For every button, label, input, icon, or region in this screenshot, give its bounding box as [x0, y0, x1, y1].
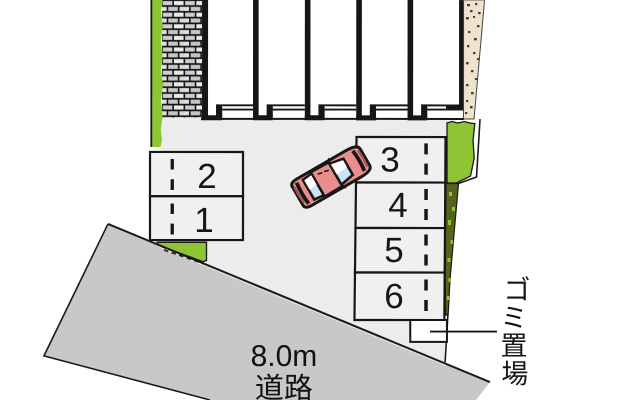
svg-text:3: 3	[380, 141, 399, 180]
svg-text:道路: 道路	[255, 372, 313, 400]
svg-text:8.0m: 8.0m	[251, 340, 318, 373]
svg-text:4: 4	[388, 186, 407, 225]
svg-text:6: 6	[384, 277, 403, 316]
svg-text:置: 置	[500, 331, 527, 361]
svg-text:1: 1	[194, 201, 213, 240]
svg-text:2: 2	[197, 157, 216, 196]
svg-text:ゴ: ゴ	[503, 275, 530, 305]
svg-text:ミ: ミ	[500, 303, 527, 333]
svg-text:場: 場	[501, 359, 528, 389]
svg-text:5: 5	[384, 231, 403, 270]
